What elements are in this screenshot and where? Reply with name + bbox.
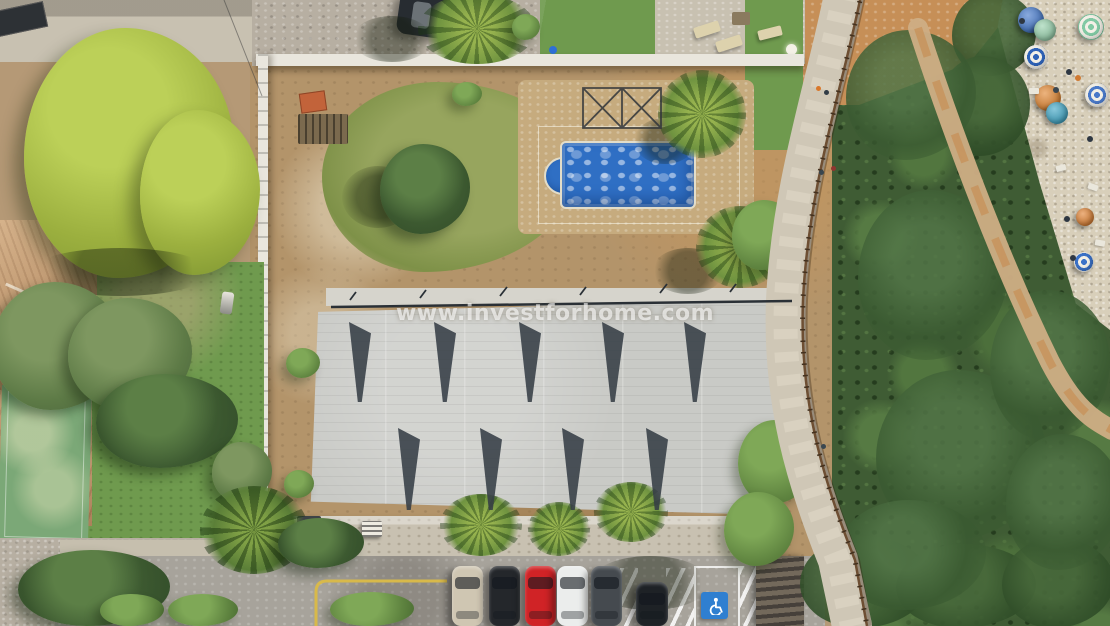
roof-shadow-wedge xyxy=(562,428,584,510)
roof-shadow-wedge xyxy=(480,428,502,510)
path-walker xyxy=(821,444,826,449)
roof-shadow-wedge xyxy=(602,322,624,402)
roof-shadow-wedge xyxy=(398,428,420,510)
path-walker xyxy=(816,86,821,91)
watermark: www.investforhome.com xyxy=(396,301,714,326)
beach-person xyxy=(1053,87,1059,93)
car-black-rear xyxy=(636,582,668,626)
beach-towel xyxy=(1087,182,1098,191)
beach-person xyxy=(1070,255,1076,261)
beach-umbrella xyxy=(1085,83,1109,107)
beach-umbrella xyxy=(1046,102,1068,124)
car-grey xyxy=(591,566,622,626)
aerial-photo: www.investforhome.com xyxy=(0,0,1110,626)
roof-shadow-wedge xyxy=(684,322,706,402)
beach-person xyxy=(1019,18,1025,24)
beach-umbrella xyxy=(1024,45,1048,69)
roof-shadow-wedge xyxy=(434,322,456,402)
car-red xyxy=(525,566,556,626)
roof-shadow-wedge xyxy=(646,428,668,510)
car-white xyxy=(557,566,588,626)
car-black xyxy=(489,566,520,626)
beach-towel xyxy=(1095,239,1106,247)
beach-person xyxy=(1087,136,1093,142)
path-walker xyxy=(819,170,824,175)
roof-shadow-wedge xyxy=(519,322,541,402)
beach-umbrella xyxy=(1034,19,1056,41)
path-walker xyxy=(831,166,836,171)
beach-towel xyxy=(1029,88,1039,94)
beach-person xyxy=(1066,69,1072,75)
beach-person xyxy=(1064,216,1070,222)
beach-umbrella xyxy=(1078,14,1104,40)
car-beige xyxy=(452,566,483,626)
path-walker xyxy=(824,90,829,95)
beach-umbrella xyxy=(1074,252,1094,272)
beach-towel xyxy=(1055,164,1066,172)
beach-person xyxy=(1075,75,1081,81)
beach-umbrella xyxy=(1076,208,1094,226)
roof-shadow-wedge xyxy=(349,322,371,402)
